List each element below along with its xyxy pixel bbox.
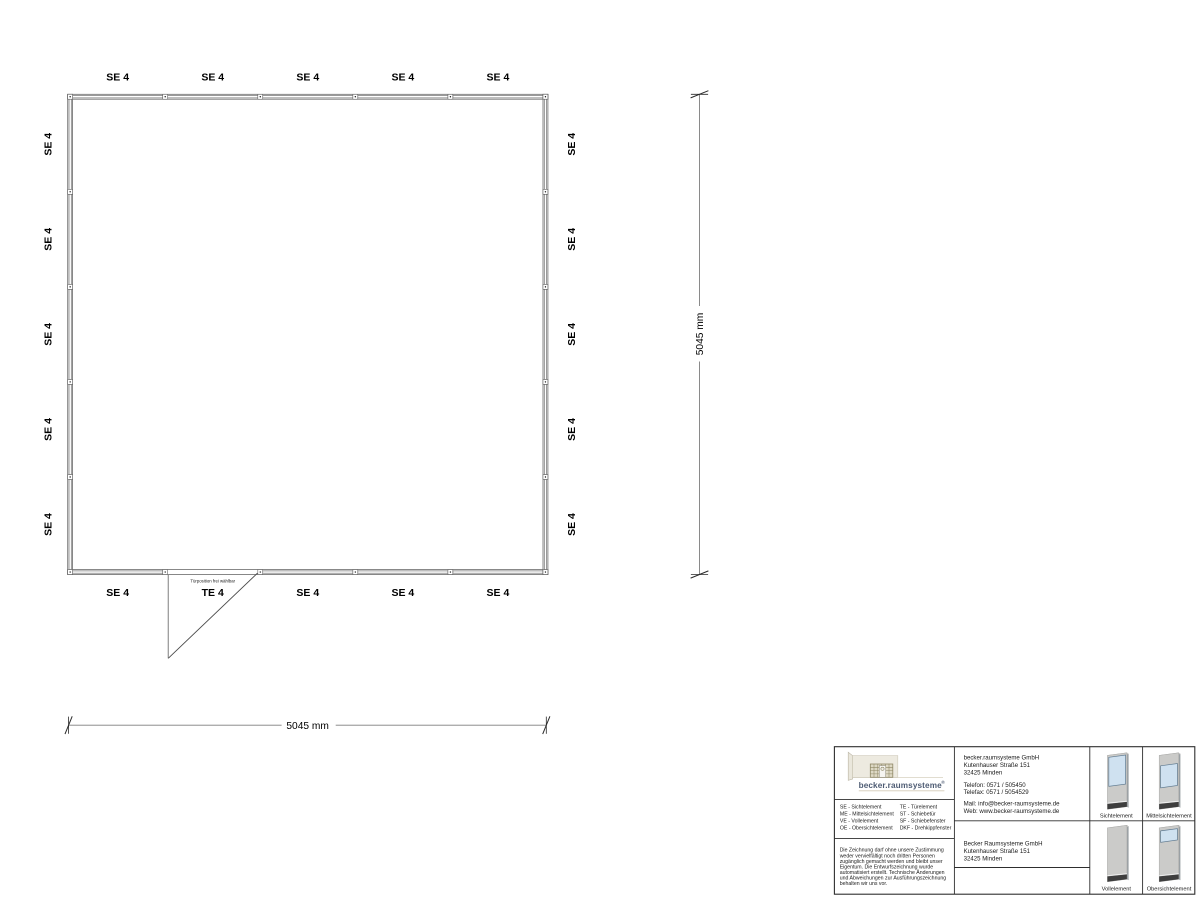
svg-text:SE 4: SE 4 (487, 71, 510, 83)
svg-text:Türposition frei wählbar: Türposition frei wählbar (190, 578, 235, 583)
svg-text:SE 4: SE 4 (106, 587, 129, 599)
svg-text:Mail: info@becker-raumsysteme.: Mail: info@becker-raumsysteme.de (964, 800, 1061, 807)
svg-text:SE 4: SE 4 (487, 587, 510, 599)
svg-text:5045 mm: 5045 mm (286, 721, 328, 732)
svg-text:SE 4: SE 4 (566, 323, 578, 346)
svg-text:SE 4: SE 4 (43, 133, 55, 156)
svg-text:TE 4: TE 4 (202, 587, 224, 599)
svg-text:SE 4: SE 4 (296, 587, 319, 599)
svg-text:becker.raumsysteme GmbH: becker.raumsysteme GmbH (964, 755, 1040, 762)
svg-text:Telefon: 0571 / 505450: Telefon: 0571 / 505450 (964, 782, 1027, 789)
svg-text:SE 4: SE 4 (566, 228, 578, 251)
svg-text:SE 4: SE 4 (391, 71, 414, 83)
svg-text:TE - Türelement: TE - Türelement (900, 805, 938, 811)
svg-text:ME - Mittelsichtelement: ME - Mittelsichtelement (840, 812, 894, 818)
svg-text:Kutenhauser Straße 151: Kutenhauser Straße 151 (964, 848, 1031, 855)
svg-text:SE 4: SE 4 (201, 71, 224, 83)
svg-text:SE 4: SE 4 (43, 513, 55, 536)
svg-text:behalten wir uns vor.: behalten wir uns vor. (840, 881, 888, 887)
svg-text:DKF - Drehkippfenster: DKF - Drehkippfenster (900, 826, 952, 832)
svg-text:SE 4: SE 4 (566, 133, 578, 156)
svg-text:OE - Obersichtelement: OE - Obersichtelement (840, 826, 893, 832)
svg-text:32425 Minden: 32425 Minden (964, 856, 1003, 863)
svg-text:Mittelsichtelement: Mittelsichtelement (1146, 814, 1192, 820)
svg-text:SE 4: SE 4 (391, 587, 414, 599)
svg-text:Web: www.becker-raumsysteme.de: Web: www.becker-raumsysteme.de (964, 808, 1060, 815)
svg-text:SE 4: SE 4 (43, 323, 55, 346)
svg-text:SE 4: SE 4 (106, 71, 129, 83)
svg-text:SE 4: SE 4 (43, 418, 55, 441)
svg-text:SE 4: SE 4 (566, 513, 578, 536)
svg-text:SE 4: SE 4 (43, 228, 55, 251)
svg-text:5045 mm: 5045 mm (695, 313, 706, 355)
svg-text:32425 Minden: 32425 Minden (964, 769, 1003, 776)
svg-text:VE - Vollelement: VE - Vollelement (840, 819, 879, 825)
svg-text:SE - Sichtelement: SE - Sichtelement (840, 805, 882, 811)
svg-text:Obersichtelement: Obersichtelement (1147, 887, 1192, 893)
svg-text:Sichtelement: Sichtelement (1100, 814, 1133, 820)
svg-text:ST - Schiebetür: ST - Schiebetür (900, 812, 936, 818)
svg-text:becker.raumsysteme: becker.raumsysteme (859, 781, 943, 790)
svg-text:SF - Schiebefenster: SF - Schiebefenster (900, 819, 946, 825)
svg-text:Kutenhauser Straße 151: Kutenhauser Straße 151 (964, 762, 1031, 769)
svg-text:SE 4: SE 4 (296, 71, 319, 83)
svg-text:®: ® (941, 779, 945, 785)
svg-text:Becker Raumsysteme GmbH: Becker Raumsysteme GmbH (964, 841, 1043, 848)
svg-text:Telefax: 0571 / 5054529: Telefax: 0571 / 5054529 (964, 789, 1030, 796)
svg-text:SE 4: SE 4 (566, 418, 578, 441)
svg-text:Vollelement: Vollelement (1102, 887, 1132, 893)
